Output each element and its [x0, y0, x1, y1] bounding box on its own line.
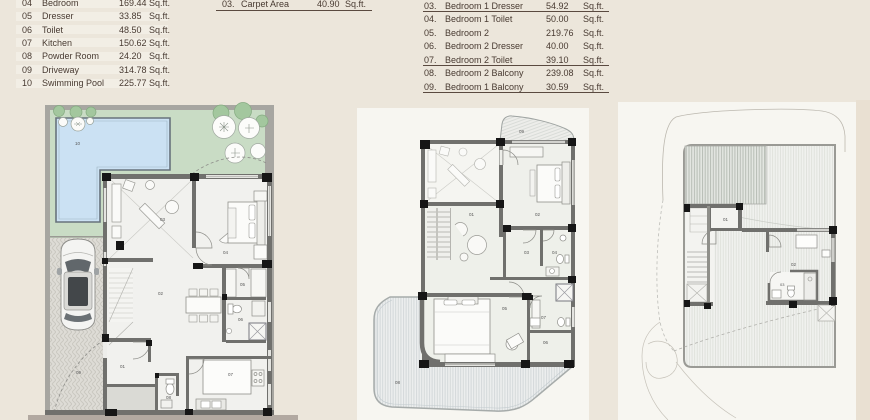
svg-text:06: 06	[238, 317, 244, 322]
svg-text:05: 05	[502, 306, 508, 311]
svg-text:10: 10	[75, 141, 81, 146]
svg-text:03: 03	[160, 217, 166, 222]
svg-text:01: 01	[469, 212, 475, 217]
svg-text:09: 09	[76, 370, 82, 375]
svg-text:07: 07	[228, 372, 234, 377]
svg-text:09: 09	[519, 129, 525, 134]
svg-text:06: 06	[543, 340, 549, 345]
svg-text:03: 03	[780, 282, 785, 287]
svg-text:04: 04	[223, 250, 229, 255]
svg-text:02: 02	[158, 291, 164, 296]
svg-text:04: 04	[552, 250, 558, 255]
svg-text:03: 03	[524, 250, 530, 255]
svg-text:01: 01	[120, 364, 126, 369]
svg-text:02: 02	[535, 212, 541, 217]
svg-text:08: 08	[395, 380, 401, 385]
svg-text:05: 05	[240, 282, 246, 287]
svg-text:07: 07	[541, 315, 547, 320]
svg-text:02: 02	[791, 262, 797, 267]
svg-text:08: 08	[166, 395, 172, 400]
svg-text:01: 01	[723, 217, 729, 222]
